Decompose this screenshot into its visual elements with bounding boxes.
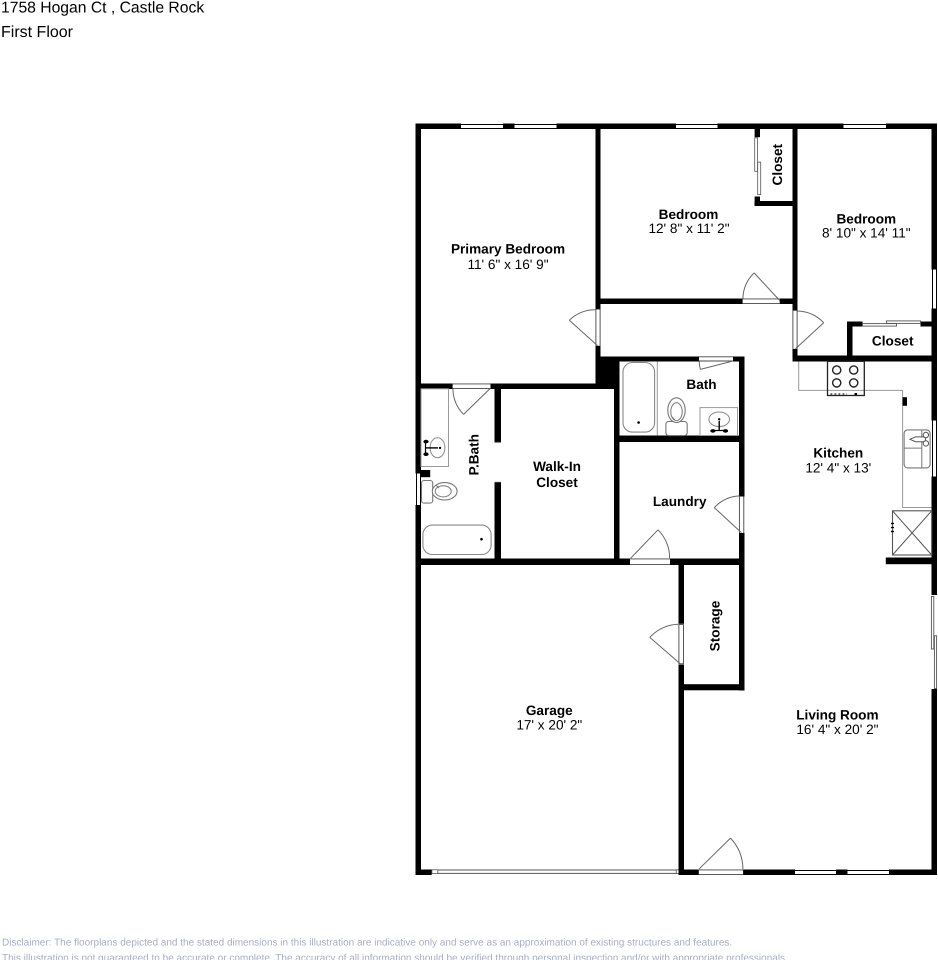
svg-text:Garage: Garage: [526, 703, 573, 718]
svg-text:First Floor: First Floor: [1, 24, 74, 41]
svg-text:1758 Hogan Ct , Castle Rock: 1758 Hogan Ct , Castle Rock: [1, 0, 204, 17]
svg-text:Bedroom: Bedroom: [836, 211, 896, 226]
svg-text:12' 8" x 11' 2": 12' 8" x 11' 2": [648, 221, 729, 236]
svg-text:Bath: Bath: [686, 377, 716, 392]
svg-text:Disclaimer: The floorplans dep: Disclaimer: The floorplans depicted and …: [2, 938, 732, 949]
svg-text:11' 6" x 16' 9": 11' 6" x 16' 9": [467, 257, 548, 272]
svg-text:Closet: Closet: [536, 475, 578, 490]
svg-text:Closet: Closet: [770, 143, 785, 185]
svg-text:16' 4" x 20' 2": 16' 4" x 20' 2": [796, 722, 878, 737]
svg-text:Laundry: Laundry: [653, 494, 707, 509]
svg-text:17' x 20' 2": 17' x 20' 2": [516, 717, 582, 732]
svg-text:Walk-In: Walk-In: [533, 459, 581, 474]
svg-text:Kitchen: Kitchen: [813, 445, 863, 460]
svg-text:Storage: Storage: [707, 600, 722, 651]
svg-text:12' 4" x 13': 12' 4" x 13': [805, 460, 871, 475]
svg-text:8' 10" x 14' 11": 8' 10" x 14' 11": [822, 226, 911, 241]
svg-text:Bedroom: Bedroom: [659, 207, 719, 222]
svg-text:Living Room: Living Room: [796, 708, 878, 723]
svg-text:P.Bath: P.Bath: [466, 434, 481, 475]
svg-text:This illustration is not guara: This illustration is not guaranteed to b…: [2, 953, 788, 960]
svg-text:Closet: Closet: [872, 334, 914, 349]
svg-text:Primary Bedroom: Primary Bedroom: [451, 242, 565, 257]
